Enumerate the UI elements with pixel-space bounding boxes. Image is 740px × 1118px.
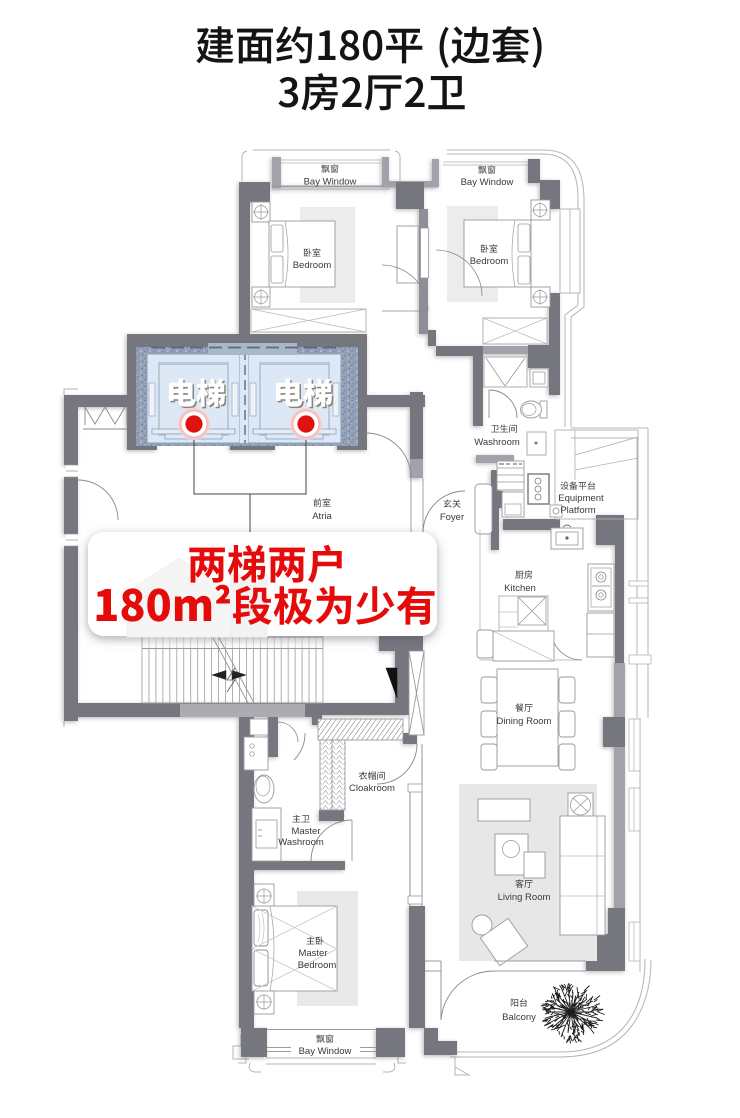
svg-text:Bay Window: Bay Window — [304, 177, 357, 188]
svg-text:Bedroom: Bedroom — [470, 256, 509, 267]
svg-text:Living Room: Living Room — [498, 892, 551, 903]
svg-text:Master: Master — [291, 826, 320, 837]
svg-text:Kitchen: Kitchen — [504, 583, 536, 594]
svg-text:Bedroom: Bedroom — [298, 960, 337, 971]
svg-text:Equipment: Equipment — [558, 493, 604, 504]
svg-text:Bay Window: Bay Window — [299, 1046, 352, 1057]
svg-text:Washroom: Washroom — [278, 837, 324, 848]
svg-text:Bay Window: Bay Window — [461, 177, 514, 188]
svg-text:Master: Master — [298, 948, 327, 959]
svg-text:Bedroom: Bedroom — [293, 260, 332, 271]
svg-text:Atria: Atria — [312, 511, 332, 522]
svg-text:Balcony: Balcony — [502, 1012, 536, 1023]
svg-text:Platform: Platform — [560, 505, 595, 516]
svg-text:Dining Room: Dining Room — [497, 716, 552, 727]
svg-text:Washroom: Washroom — [474, 437, 520, 448]
svg-text:Cloakroom: Cloakroom — [349, 783, 395, 794]
svg-text:Foyer: Foyer — [440, 512, 464, 523]
